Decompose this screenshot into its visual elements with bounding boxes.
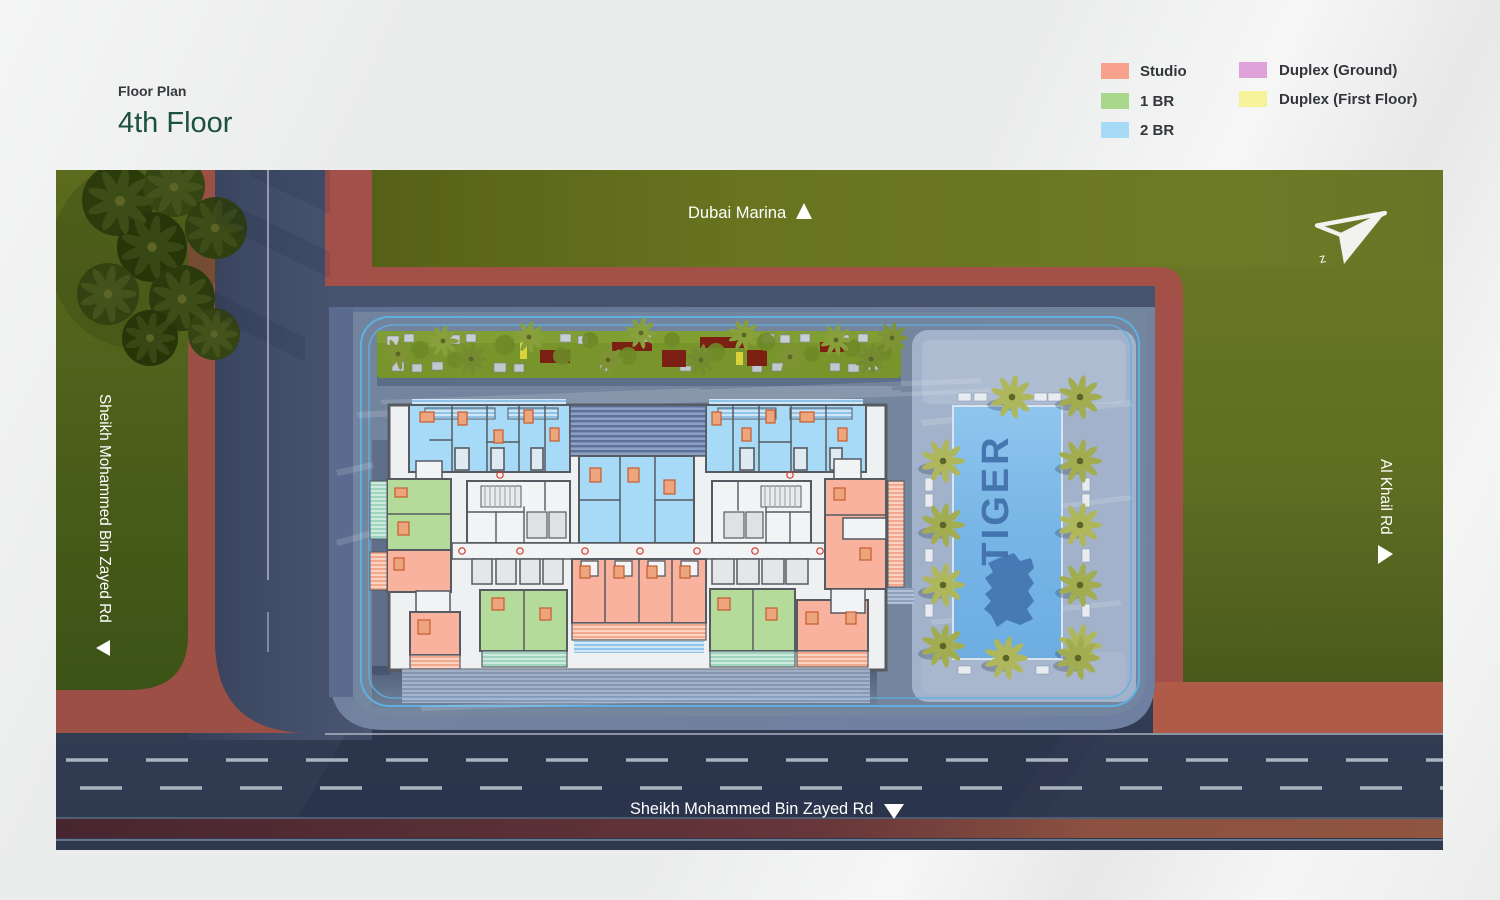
svg-text:Dubai Marina: Dubai Marina [688, 204, 787, 222]
svg-text:TIGER: TIGER [975, 434, 1017, 565]
svg-text:Sheikh Mohammed Bin Zayed Rd: Sheikh Mohammed Bin Zayed Rd [630, 800, 873, 818]
svg-text:Sheikh Mohammed Bin Zayed Rd: Sheikh Mohammed Bin Zayed Rd [96, 394, 113, 623]
svg-text:Al Khail Rd: Al Khail Rd [1377, 459, 1394, 535]
